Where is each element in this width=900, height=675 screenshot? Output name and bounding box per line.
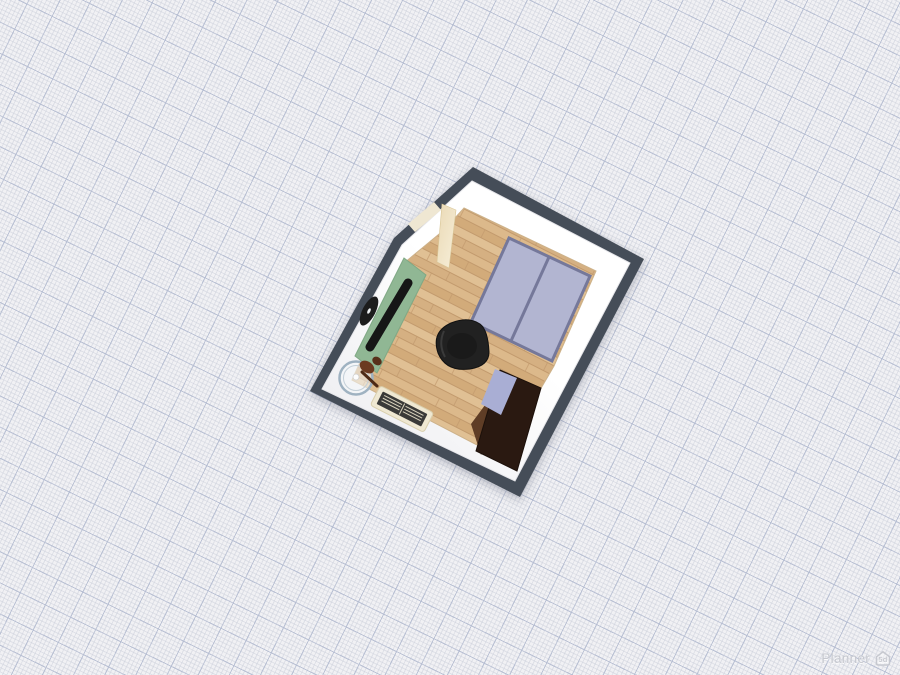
armchair[interactable] xyxy=(436,320,489,370)
armchair-seat xyxy=(447,333,477,359)
planner5d-logo-icon: 5d xyxy=(873,650,893,667)
floor-planner-canvas[interactable]: Planner 5d xyxy=(0,0,900,675)
watermark-brand: Planner xyxy=(821,651,870,666)
floor-plan xyxy=(0,0,900,675)
decor-dot xyxy=(353,374,359,380)
watermark: Planner 5d xyxy=(821,650,893,667)
watermark-badge-text: 5d xyxy=(878,655,887,664)
